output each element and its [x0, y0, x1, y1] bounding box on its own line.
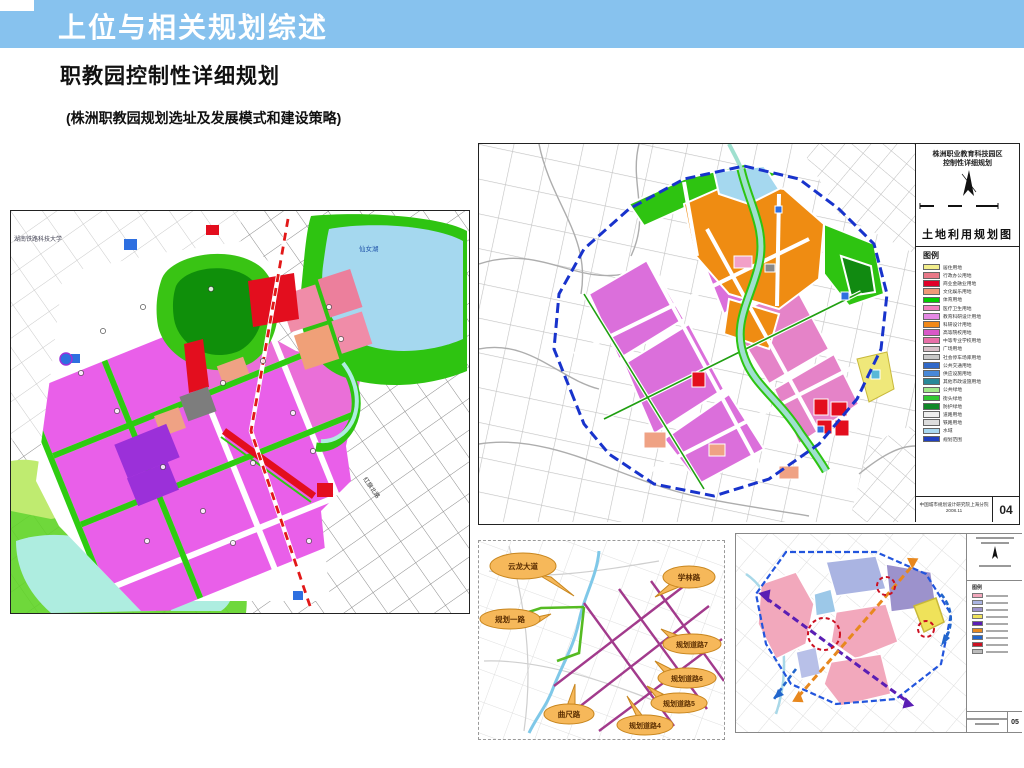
legend-label: 街头绿地 — [943, 395, 962, 402]
legend-row: 规划范围 — [923, 435, 1015, 443]
legend-label: 公共绿地 — [943, 387, 962, 394]
legend-swatch — [923, 297, 940, 304]
right-map-canvas — [479, 144, 915, 522]
legend-label-bar — [986, 595, 1008, 597]
legend-row — [972, 620, 1018, 627]
svg-text:规划道路5: 规划道路5 — [663, 699, 695, 708]
landuse-legend: 图例 居住用地行政办公用地商业金融业用地文化娱乐用地体育用地医疗卫生用地教育科研… — [923, 250, 1015, 443]
legend-swatch — [923, 346, 940, 353]
legend-label: 规划范围 — [943, 436, 962, 443]
legend-row: 体育用地 — [923, 296, 1015, 304]
legend-swatch — [923, 354, 940, 361]
svg-text:规划一路: 规划一路 — [495, 614, 525, 624]
legend-title: 图例 — [923, 250, 1015, 261]
legend-label: 供应设施用地 — [943, 370, 972, 377]
svg-text:曲尺路: 曲尺路 — [558, 709, 581, 719]
legend-swatch — [972, 621, 983, 626]
credit-bar2 — [975, 723, 999, 725]
credit-institute: 中国城市规划设计研究院上海分院 — [919, 501, 989, 507]
left-map-canvas: 仙女湖 湖南铁路科技大学 — [11, 211, 469, 613]
legend-label: 广场用地 — [943, 346, 962, 353]
legend-row — [972, 592, 1018, 599]
legend-label-bar — [986, 637, 1008, 639]
legend-label: 居住用地 — [943, 264, 962, 271]
legend-label: 高等院校用地 — [943, 329, 972, 336]
structure-map-sidebar: 图例 05 — [966, 534, 1022, 732]
legend-label: 商业金融业用地 — [943, 280, 976, 287]
road-diagram-canvas: 云龙大道 学林路 规划一路 规划道路7 规划道路6 规划道路5 — [479, 541, 724, 739]
legend-row: 道路用地 — [923, 410, 1015, 418]
legend-row: 高等院校用地 — [923, 329, 1015, 337]
legend-row: 居住用地 — [923, 263, 1015, 271]
svg-text:规划道路7: 规划道路7 — [676, 640, 708, 649]
legend-title: 图例 — [972, 584, 1018, 591]
svg-text:云龙大道: 云龙大道 — [508, 561, 538, 571]
legend-swatch — [972, 593, 983, 598]
legend-label: 铁路用地 — [943, 419, 962, 426]
credit-bar — [967, 718, 1007, 720]
slide-subtitle: 职教园控制性详细规划 — [60, 60, 280, 90]
left-map-panel: 仙女湖 湖南铁路科技大学 — [10, 210, 470, 614]
university-label: 湖南铁路科技大学 — [14, 235, 62, 243]
legend-label: 道路用地 — [943, 411, 962, 418]
legend-label: 科研设计用地 — [943, 321, 972, 328]
right-map-panel: 株洲职业教育科技园区 控制性详细规划 土地利用规划图 图例 居住用地行政办公用地… — [478, 143, 1020, 525]
svg-text:规划道路6: 规划道路6 — [671, 674, 703, 683]
lake-label: 仙女湖 — [359, 244, 379, 253]
legend-row: 公共交通用地 — [923, 361, 1015, 369]
legend-swatch — [923, 370, 940, 377]
legend-row: 水域 — [923, 427, 1015, 435]
legend-swatch — [923, 329, 940, 336]
legend-label: 防护绿地 — [943, 403, 962, 410]
legend-swatch — [972, 600, 983, 605]
right-map-sidebar: 株洲职业教育科技园区 控制性详细规划 土地利用规划图 图例 居住用地行政办公用地… — [915, 144, 1019, 522]
scale-bar — [979, 565, 1011, 567]
legend-label: 医疗卫生用地 — [943, 305, 972, 312]
legend-label: 中等专业学校用地 — [943, 337, 981, 344]
legend-row: 行政办公用地 — [923, 271, 1015, 279]
legend-swatch — [923, 321, 940, 328]
legend-swatch — [972, 649, 983, 654]
credit-date: 2008.11 — [919, 508, 989, 514]
title-block: 中国城市规划设计研究院上海分院 2008.11 04 — [916, 496, 1019, 522]
legend-row — [972, 613, 1018, 620]
legend-label: 其他市政设施用地 — [943, 378, 981, 385]
legend-label: 公共交通用地 — [943, 362, 972, 369]
cartouche-title-bar — [976, 537, 1014, 539]
legend-label: 社会停车场库用地 — [943, 354, 981, 361]
map-title-line1: 株洲职业教育科技园区 — [916, 150, 1019, 159]
legend-swatch — [972, 614, 983, 619]
legend-swatch — [923, 387, 940, 394]
legend-row: 科研设计用地 — [923, 320, 1015, 328]
legend-label-bar — [986, 644, 1008, 646]
structure-map-panel: 图例 05 — [735, 533, 1022, 733]
legend-row — [972, 634, 1018, 641]
legend-swatch — [972, 635, 983, 640]
credit-text: 中国城市规划设计研究院上海分院 2008.11 — [916, 497, 992, 522]
legend-row: 铁路用地 — [923, 419, 1015, 427]
legend-label-bar — [986, 609, 1008, 611]
legend-swatch — [923, 305, 940, 312]
legend-label: 体育用地 — [943, 297, 962, 304]
legend-swatch — [923, 264, 940, 271]
legend-label-bar — [986, 623, 1008, 625]
legend-swatch — [923, 403, 940, 410]
legend-swatch — [923, 337, 940, 344]
legend-swatch — [923, 280, 940, 287]
legend-label: 水域 — [943, 428, 953, 435]
scale-bar — [916, 202, 1002, 210]
legend-swatch — [923, 436, 940, 443]
credit-text — [967, 712, 1007, 732]
legend-swatch — [923, 288, 940, 295]
legend-swatch — [923, 428, 940, 435]
legend-label: 行政办公用地 — [943, 272, 972, 279]
legend-row: 医疗卫生用地 — [923, 304, 1015, 312]
legend-row: 防护绿地 — [923, 402, 1015, 410]
legend-row: 文化娱乐用地 — [923, 288, 1015, 296]
legend-row: 广场用地 — [923, 345, 1015, 353]
structure-title-block: 05 — [967, 711, 1022, 732]
svg-text:学林路: 学林路 — [678, 572, 701, 582]
legend-swatch — [923, 411, 940, 418]
legend-row — [972, 641, 1018, 648]
landuse-legend-rows: 居住用地行政办公用地商业金融业用地文化娱乐用地体育用地医疗卫生用地教育科研设计用… — [923, 263, 1015, 443]
sheet-number: 05 — [1007, 712, 1022, 732]
legend-row: 其他市政设施用地 — [923, 378, 1015, 386]
legend-swatch — [923, 313, 940, 320]
legend-row: 中等专业学校用地 — [923, 337, 1015, 345]
legend-row: 教育科研设计用地 — [923, 312, 1015, 320]
legend-swatch — [923, 378, 940, 385]
legend-swatch — [923, 395, 940, 402]
legend-row — [972, 627, 1018, 634]
legend-swatch — [923, 419, 940, 426]
sheet-number: 04 — [992, 497, 1019, 522]
legend-swatch — [972, 628, 983, 633]
legend-row: 街头绿地 — [923, 394, 1015, 402]
structure-legend: 图例 — [972, 584, 1018, 655]
legend-label: 教育科研设计用地 — [943, 313, 981, 320]
legend-row — [972, 599, 1018, 606]
legend-row — [972, 606, 1018, 613]
legend-row: 商业金融业用地 — [923, 279, 1015, 287]
legend-row: 社会停车场库用地 — [923, 353, 1015, 361]
structure-legend-rows — [972, 592, 1018, 655]
legend-swatch — [972, 642, 983, 647]
page-title: 上位与相关规划综述 — [58, 6, 328, 46]
map-name: 土地利用规划图 — [916, 226, 1019, 242]
structure-cartouche — [967, 534, 1022, 581]
legend-label: 文化娱乐用地 — [943, 288, 972, 295]
north-arrow-icon — [916, 168, 1019, 202]
legend-row: 公共绿地 — [923, 386, 1015, 394]
svg-text:规划道路4: 规划道路4 — [629, 721, 661, 730]
legend-label-bar — [986, 616, 1008, 618]
north-arrow-icon — [967, 544, 1022, 562]
legend-swatch — [923, 272, 940, 279]
legend-label-bar — [986, 602, 1008, 604]
slide-note: (株洲职教园规划选址及发展模式和建设策略) — [66, 108, 341, 128]
map-title-line2: 控制性详细规划 — [916, 159, 1019, 168]
structure-map-canvas — [736, 534, 966, 732]
legend-label-bar — [986, 630, 1008, 632]
legend-swatch — [972, 607, 983, 612]
banner-notch — [0, 0, 34, 11]
legend-row — [972, 648, 1018, 655]
legend-swatch — [923, 362, 940, 369]
legend-label-bar — [986, 651, 1008, 653]
road-diagram-panel: 云龙大道 学林路 规划一路 规划道路7 规划道路6 规划道路5 — [478, 540, 725, 740]
legend-row: 供应设施用地 — [923, 369, 1015, 377]
